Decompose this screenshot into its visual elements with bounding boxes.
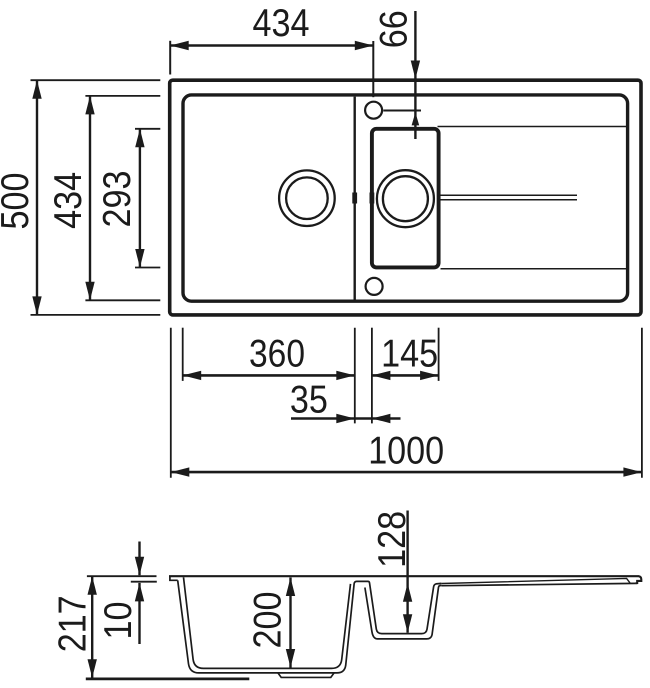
svg-text:35: 35: [290, 379, 328, 422]
svg-text:434: 434: [47, 172, 90, 229]
svg-text:293: 293: [96, 171, 139, 228]
svg-text:145: 145: [381, 332, 438, 375]
svg-text:10: 10: [97, 602, 140, 640]
svg-text:434: 434: [253, 2, 310, 45]
svg-text:500: 500: [0, 173, 37, 230]
svg-text:200: 200: [246, 592, 289, 649]
svg-text:66: 66: [372, 10, 415, 48]
svg-text:360: 360: [249, 332, 305, 375]
svg-text:1000: 1000: [368, 429, 444, 472]
svg-text:217: 217: [52, 595, 95, 652]
svg-text:128: 128: [371, 511, 414, 568]
